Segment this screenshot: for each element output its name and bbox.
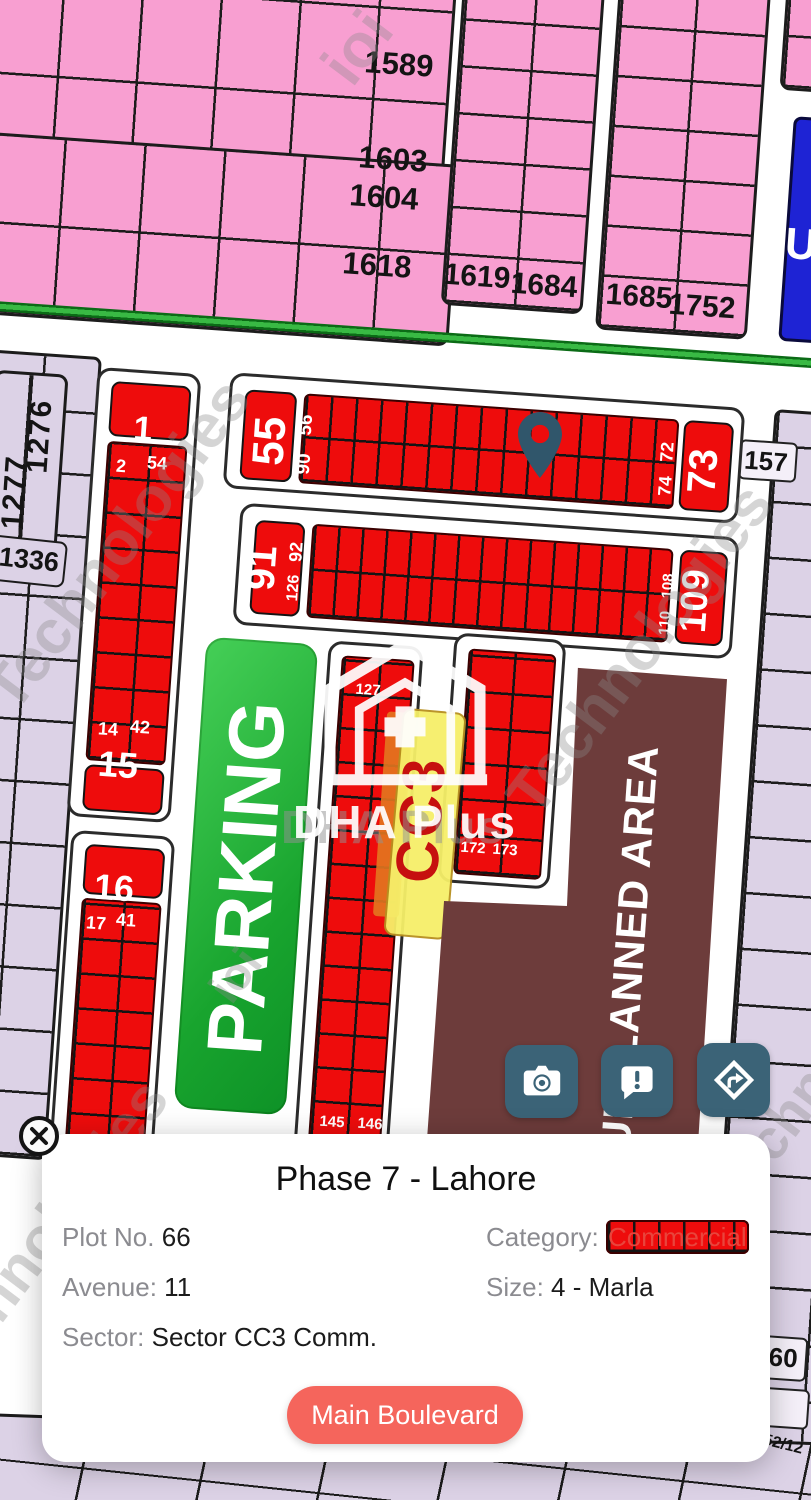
selected-plot-pin-icon [518, 412, 562, 478]
report-icon [615, 1059, 659, 1103]
avenue-label: Avenue: [62, 1272, 157, 1302]
plot-1336[interactable] [0, 534, 68, 588]
close-card-button[interactable] [19, 1116, 59, 1156]
residential-block-corner[interactable] [779, 0, 811, 94]
report-button[interactable] [601, 1045, 673, 1117]
camera-button[interactable] [505, 1045, 578, 1118]
dha-plus-house-icon [280, 640, 530, 790]
plot-cell-157[interactable] [738, 439, 799, 483]
directions-icon [711, 1057, 757, 1103]
app-screen: 15891603160416181619168416851752U1571605… [0, 0, 811, 1500]
size-value: 4 - Marla [551, 1272, 654, 1302]
plot-no-label: Plot No. [62, 1222, 155, 1252]
commercial-strip-55-73[interactable] [223, 372, 746, 524]
commercial-strip-16-41[interactable] [49, 830, 176, 1166]
dha-plus-logo-watermark: DHA Plus [280, 640, 530, 850]
sector-label: Sector: [62, 1322, 144, 1352]
sector-value: Sector CC3 Comm. [152, 1322, 377, 1352]
close-icon [28, 1125, 50, 1147]
plot-no-value: 66 [162, 1222, 191, 1252]
size-label: Size: [486, 1272, 544, 1302]
main-boulevard-button[interactable]: Main Boulevard [287, 1386, 523, 1444]
blue-plot-u[interactable] [778, 116, 811, 345]
dha-plus-logo-text: DHA Plus [280, 795, 530, 849]
avenue-field: Avenue: 11 [62, 1272, 191, 1303]
category-value: Commercial [606, 1220, 749, 1254]
camera-icon [519, 1059, 565, 1105]
residential-block-1619-1684[interactable] [441, 0, 606, 315]
avenue-value: 11 [164, 1272, 191, 1302]
residential-block-1685-1752[interactable] [595, 0, 771, 340]
plot-info-card: Phase 7 - Lahore Plot No. 66 Category: C… [42, 1134, 770, 1462]
directions-button[interactable] [697, 1043, 770, 1117]
category-label: Category: [486, 1222, 599, 1252]
plot-no-field: Plot No. 66 [62, 1222, 191, 1253]
size-field: Size: 4 - Marla [486, 1272, 654, 1303]
category-field: Category: Commercial [486, 1222, 749, 1253]
sector-field: Sector: Sector CC3 Comm. [62, 1322, 377, 1353]
card-title: Phase 7 - Lahore [42, 1160, 770, 1199]
